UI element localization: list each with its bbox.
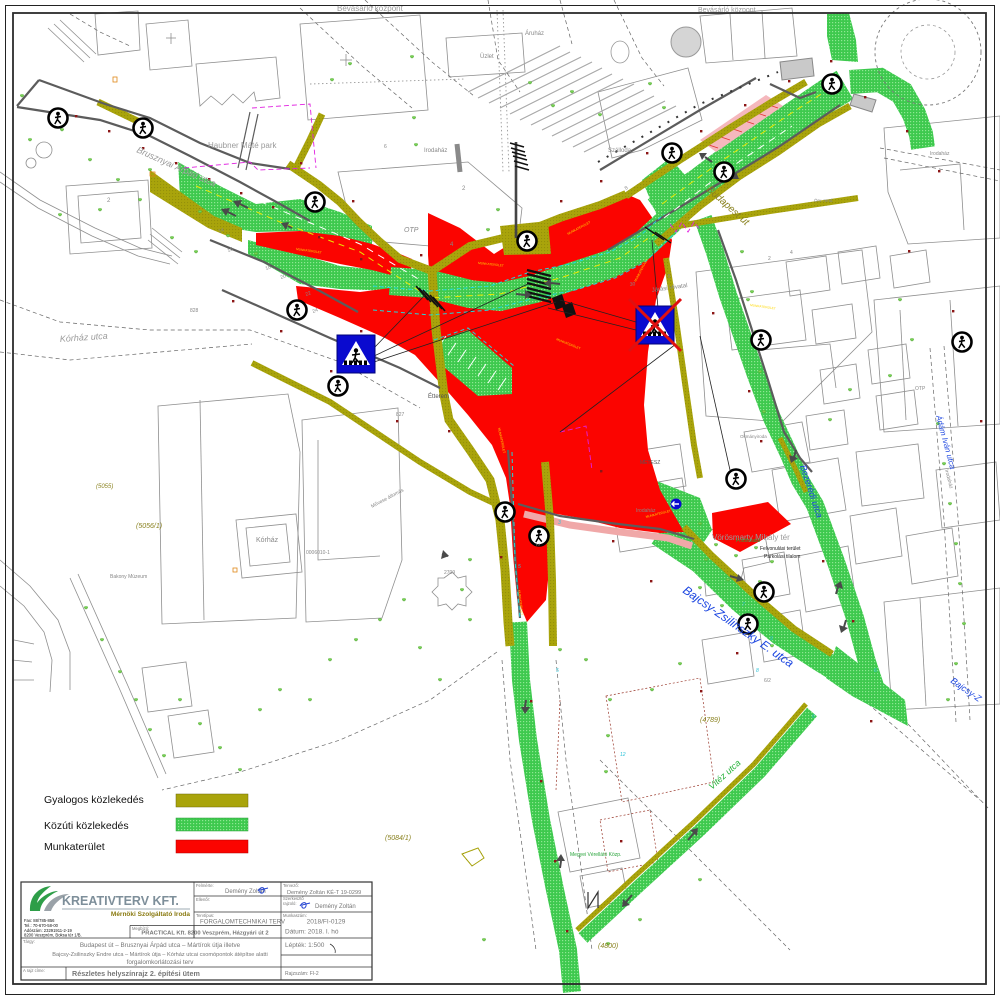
svg-text:OTP: OTP [404, 227, 419, 234]
svg-text:8: 8 [756, 668, 759, 674]
svg-text:KREATIVTERV KFT.: KREATIVTERV KFT. [62, 894, 179, 908]
svg-text:Tervező:: Tervező: [283, 883, 299, 888]
svg-text:9: 9 [770, 636, 773, 642]
svg-text:Irodaház: Irodaház [424, 148, 447, 154]
svg-text:Okmányiroda: Okmányiroda [740, 434, 767, 439]
svg-text:Tervtípus:: Tervtípus: [196, 913, 214, 918]
svg-text:METESZ: METESZ [640, 460, 660, 466]
svg-text:7: 7 [742, 602, 745, 608]
svg-text:2018/FI-0129: 2018/FI-0129 [307, 919, 346, 926]
svg-text:Rajzszám: FI-2: Rajzszám: FI-2 [285, 971, 319, 977]
svg-text:2709: 2709 [444, 570, 455, 576]
svg-text:Demény Zoltán: Demény Zoltán [315, 904, 356, 910]
svg-text:5: 5 [556, 668, 559, 674]
svg-text:Részletes helyszínrajz 2. épít: Részletes helyszínrajz 2. építési ütem [72, 969, 200, 978]
svg-text:PRACTICAL Kft. 8200 Veszprém,: PRACTICAL Kft. 8200 Veszprém, Házgyári ú… [141, 931, 268, 937]
svg-text:Szálloda: Szálloda [608, 148, 632, 154]
svg-text:Bakony Múzeum: Bakony Múzeum [110, 574, 147, 580]
svg-text:Órv. rend.: Órv. rend. [814, 197, 834, 203]
svg-text:Munkaterület: Munkaterület [44, 841, 105, 853]
svg-text:Tárgy:: Tárgy: [23, 939, 35, 944]
svg-text:Irodaház: Irodaház [930, 151, 950, 157]
svg-text:Haubner Máté park: Haubner Máté park [208, 141, 277, 150]
svg-text:827: 827 [396, 412, 405, 418]
svg-text:Munkaszám:: Munkaszám: [283, 913, 307, 918]
svg-text:(5056/1): (5056/1) [136, 523, 162, 530]
svg-text:Közúti közlekedés: Közúti közlekedés [44, 820, 129, 832]
svg-text:Étterem: Étterem [428, 393, 449, 400]
svg-text:Megyei Vérellátó Közp.: Megyei Vérellátó Közp. [570, 852, 621, 858]
svg-text:forgalomkorlátozási terv: forgalomkorlátozási terv [127, 959, 195, 966]
svg-text:Földhivatal: Földhivatal [736, 538, 760, 544]
svg-text:Demény Zoltán KÉ-T 19-0299: Demény Zoltán KÉ-T 19-0299 [287, 889, 361, 896]
svg-text:(5084/1): (5084/1) [385, 835, 411, 842]
svg-text:8200 Veszprém, Boksa tér 1/B.: 8200 Veszprém, Boksa tér 1/B. [24, 933, 82, 938]
svg-text:828: 828 [190, 308, 199, 314]
svg-text:2: 2 [768, 256, 771, 262]
svg-text:Felvonulási terület: Felvonulási terület [760, 546, 801, 552]
svg-text:Áruház: Áruház [525, 30, 544, 37]
svg-text:Felmérte:: Felmérte: [196, 883, 214, 888]
svg-text:Lépték: 1:500: Lépték: 1:500 [285, 942, 325, 949]
svg-text:A rajz címe:: A rajz címe: [23, 968, 45, 973]
svg-text:6/2: 6/2 [764, 678, 771, 684]
svg-text:6: 6 [812, 714, 815, 720]
svg-text:(5055): (5055) [96, 484, 113, 490]
svg-text:6: 6 [874, 668, 877, 674]
svg-text:OTP: OTP [915, 386, 926, 392]
svg-text:0006010-1: 0006010-1 [306, 550, 330, 556]
svg-text:Ellenőr:: Ellenőr: [196, 897, 210, 902]
svg-text:FORGALOMTECHNIKAI TERV: FORGALOMTECHNIKAI TERV [200, 919, 286, 926]
svg-text:6: 6 [384, 144, 387, 150]
svg-text:12: 12 [620, 752, 626, 758]
svg-text:Budapest út – Brusznyai Árpád: Budapest út – Brusznyai Árpád utca – Már… [80, 940, 241, 949]
svg-text:Parkolási tilalom: Parkolási tilalom [764, 554, 800, 560]
svg-text:3: 3 [558, 520, 561, 526]
svg-text:Mérnöki Szolgáltató Iroda: Mérnöki Szolgáltató Iroda [111, 911, 190, 918]
svg-text:5: 5 [518, 564, 521, 570]
svg-text:(4800): (4800) [598, 943, 618, 950]
svg-text:Gyalogos közlekedés: Gyalogos közlekedés [44, 794, 144, 806]
svg-text:4: 4 [790, 250, 793, 256]
svg-text:Üzlet: Üzlet [480, 53, 494, 60]
svg-text:Dátum: 2018. I. hó: Dátum: 2018. I. hó [285, 929, 339, 936]
svg-text:(4789): (4789) [700, 717, 720, 724]
svg-text:rajzoló:: rajzoló: [283, 901, 297, 906]
svg-text:Kórház: Kórház [256, 537, 279, 544]
svg-text:Bajcsy-Zsilinszky Endre utca –: Bajcsy-Zsilinszky Endre utca – Mártírok … [52, 952, 267, 958]
